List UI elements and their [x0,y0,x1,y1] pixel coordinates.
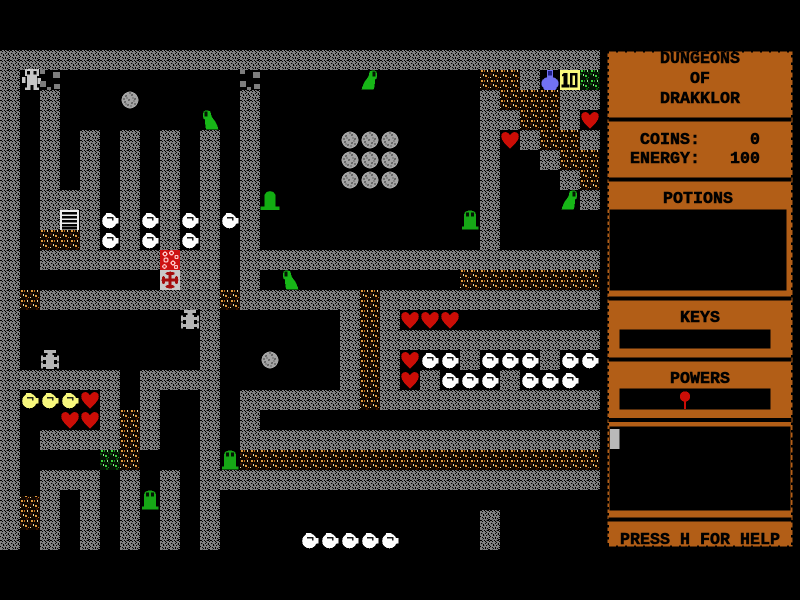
svg-text:0: 0 [750,130,760,149]
svg-text:COINS:: COINS: [640,130,700,149]
svg-text:KEYS: KEYS [680,308,720,327]
svg-text:DUNGEONS: DUNGEONS [660,49,740,68]
svg-text:POTIONS: POTIONS [663,189,733,208]
svg-text:POWERS: POWERS [670,369,730,388]
svg-text:DRAKKLOR: DRAKKLOR [660,89,740,108]
svg-text:OF: OF [690,69,710,88]
svg-text:100: 100 [730,149,760,168]
svg-text:ENERGY:: ENERGY: [630,149,700,168]
svg-text:PRESS H FOR HELP: PRESS H FOR HELP [620,530,780,549]
